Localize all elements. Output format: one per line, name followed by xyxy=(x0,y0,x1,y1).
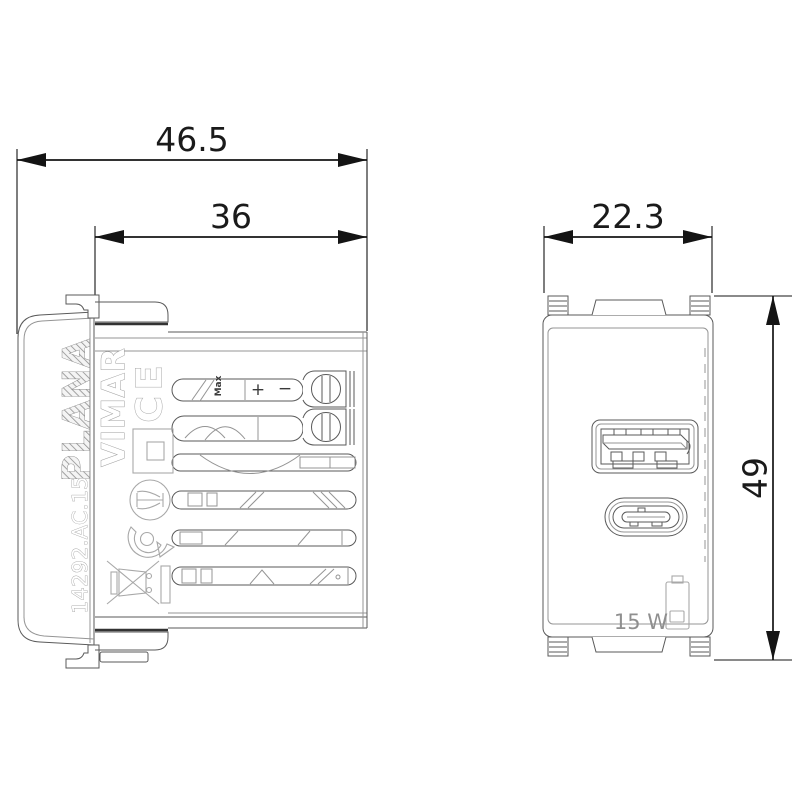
terminal-screw-icon xyxy=(312,413,341,442)
terminal-screw-icon xyxy=(312,375,341,404)
brand-label: VIMAR xyxy=(96,347,132,466)
dimension-front-height: 49 xyxy=(714,296,792,660)
part-number: 14292.AC.15 xyxy=(68,476,92,614)
front-view: 15 W xyxy=(543,296,713,656)
dimension-value: 46.5 xyxy=(155,120,228,159)
mounting-claw-icon xyxy=(66,645,99,668)
vimar-usb-module-drawing: 46.5 36 22.3 49 xyxy=(0,0,800,800)
ce-mark: CE xyxy=(130,359,171,422)
arrow-up-icon xyxy=(766,296,780,325)
arrow-right-icon xyxy=(338,230,367,244)
dimension-value: 49 xyxy=(736,457,775,499)
plus-label: + xyxy=(251,380,265,400)
battery-icon xyxy=(666,576,689,629)
arrow-right-icon xyxy=(338,153,367,167)
fixing-tabs-bottom xyxy=(548,637,710,656)
vent-slat xyxy=(172,416,303,441)
weee-bin-icon xyxy=(107,561,170,604)
usb-c-port-icon xyxy=(605,498,687,536)
mounting-claw-icon xyxy=(66,295,99,318)
arrow-down-icon xyxy=(766,631,780,660)
series-label: PLANA xyxy=(56,338,99,482)
max-label: Max xyxy=(214,375,224,396)
double-insulation-icon xyxy=(133,429,173,473)
usb-a-port-icon xyxy=(592,420,698,473)
dimension-value: 36 xyxy=(210,197,252,236)
dimension-value: 22.3 xyxy=(591,197,664,236)
recycling-mark-icon xyxy=(128,527,174,557)
mounting-tab xyxy=(100,652,148,662)
side-view: + − Max PLANA VIMAR CE 14292.AC.15 xyxy=(18,295,367,668)
dimension-recess-depth: 36 xyxy=(95,197,367,299)
certification-circle-icon xyxy=(130,480,170,520)
power-rating-label: 15 W xyxy=(614,610,668,634)
minus-label: − xyxy=(278,379,292,399)
body-outline xyxy=(95,302,367,650)
arrow-left-icon xyxy=(544,230,573,244)
module-outline xyxy=(543,315,713,637)
terminal-block xyxy=(303,371,354,445)
arrow-left-icon xyxy=(95,230,124,244)
technical-drawing-canvas: 46.5 36 22.3 49 xyxy=(0,0,800,800)
fixing-tabs-top xyxy=(548,296,710,315)
arrow-left-icon xyxy=(17,153,46,167)
dimension-front-width: 22.3 xyxy=(544,197,712,293)
vent-slat xyxy=(172,567,356,585)
arrow-right-icon xyxy=(683,230,712,244)
